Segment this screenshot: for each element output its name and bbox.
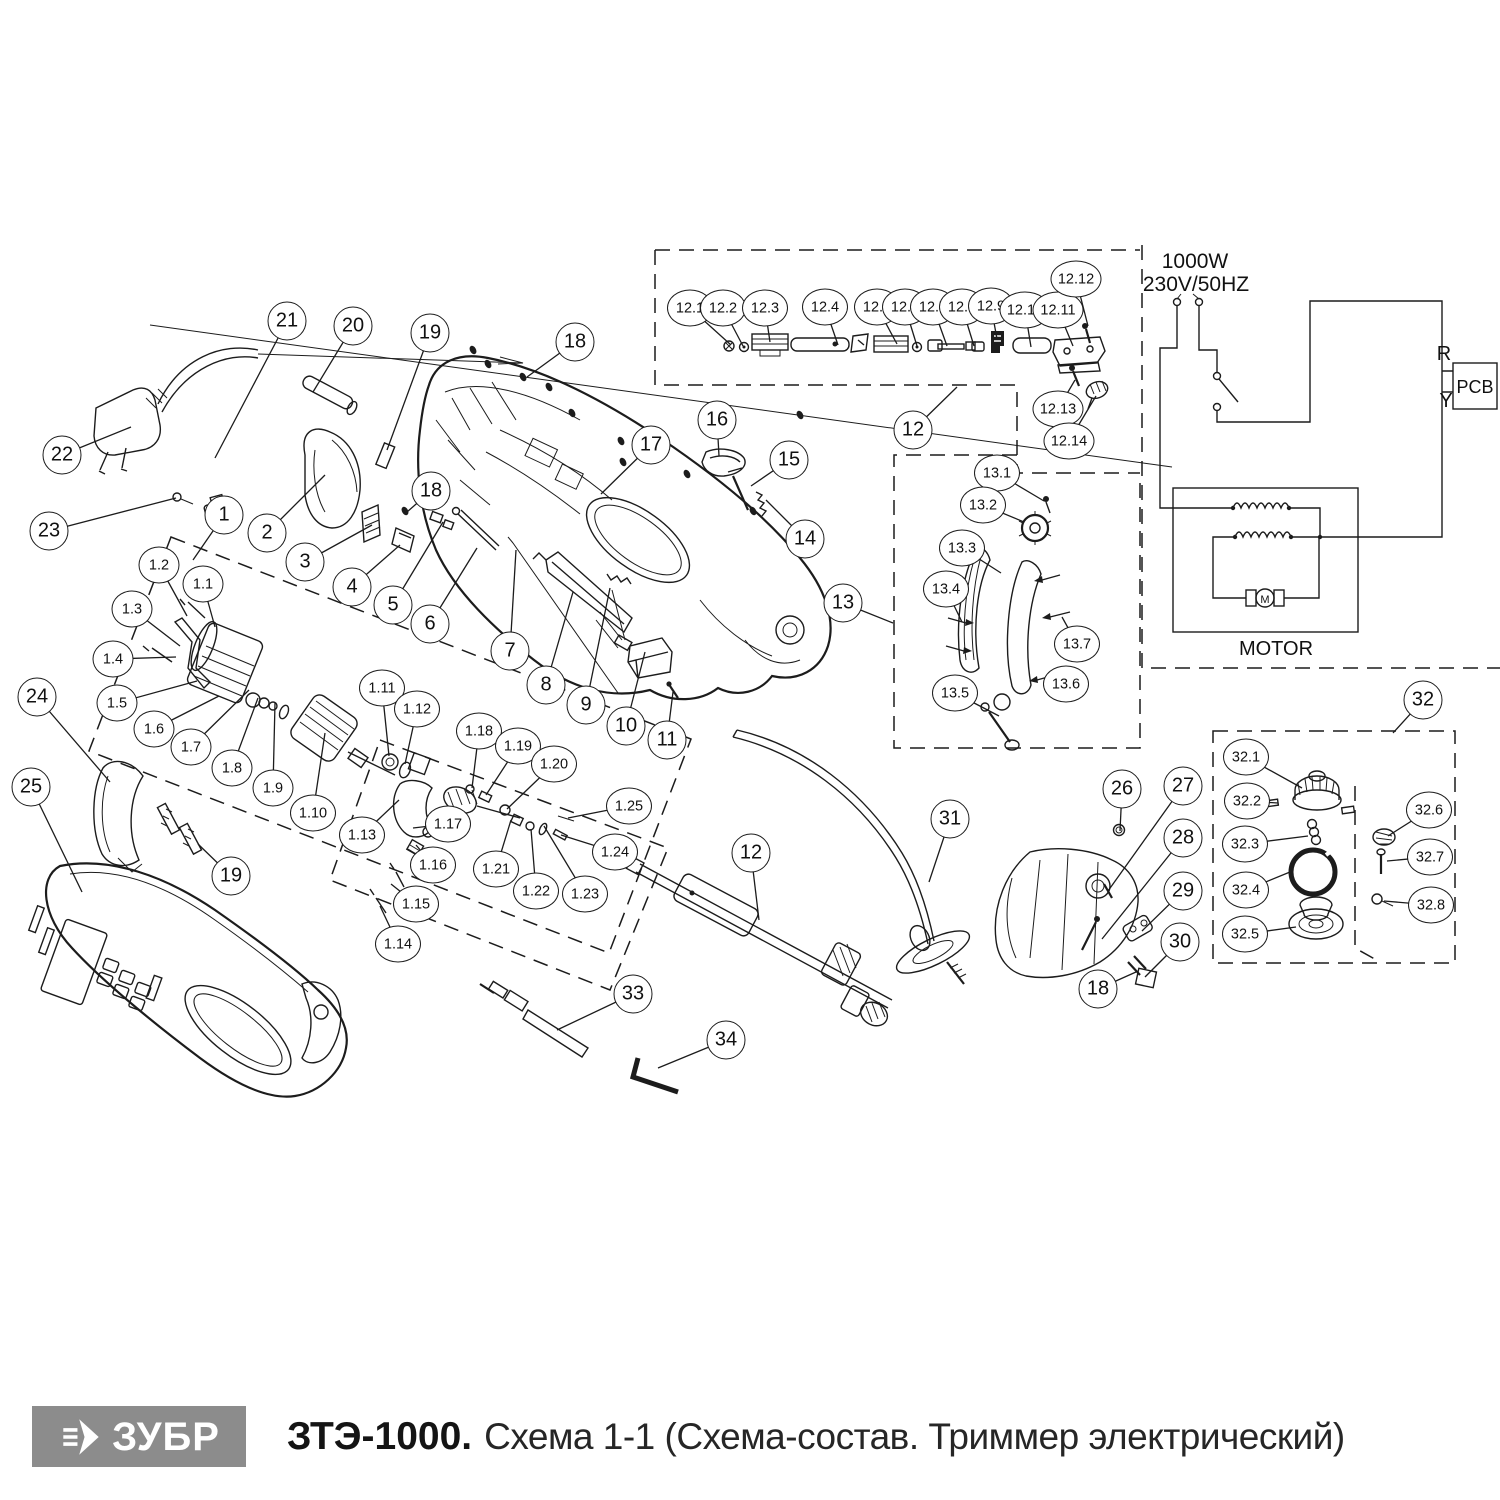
- callout-18-18: 18: [556, 323, 595, 362]
- callout-1.2-39: 1.2: [139, 547, 180, 584]
- callout-13.6-82: 13.6: [1043, 666, 1089, 703]
- callout-14-14: 14: [786, 520, 825, 559]
- callout-1.17-54: 1.17: [425, 806, 471, 843]
- callout-12-12: 12: [732, 834, 771, 873]
- callout-21-24: 21: [268, 302, 307, 341]
- callout-1.8-45: 1.8: [212, 750, 253, 787]
- callout-1.4-41: 1.4: [93, 641, 134, 678]
- callout-32.7-90: 32.7: [1407, 839, 1453, 876]
- callout-19-22: 19: [212, 857, 251, 896]
- callout-12.3-65: 12.3: [742, 290, 788, 327]
- callout-30-33: 30: [1161, 923, 1200, 962]
- callout-15-15: 15: [770, 441, 809, 480]
- callout-12.4-66: 12.4: [802, 289, 848, 326]
- callout-13.3-79: 13.3: [939, 530, 985, 567]
- drawing-title: ЗТЭ-1000. Схема 1-1 (Схема-состав. Тримм…: [287, 1406, 1345, 1467]
- callout-8-7: 8: [527, 666, 566, 705]
- callout-13.2-78: 13.2: [960, 487, 1006, 524]
- callout-23-26: 23: [30, 512, 69, 551]
- callout-18-20: 18: [1079, 970, 1118, 1009]
- callout-1.23-60: 1.23: [562, 876, 608, 913]
- callout-31-34: 31: [931, 800, 970, 839]
- callout-1.5-42: 1.5: [97, 685, 138, 722]
- callout-1.7-44: 1.7: [171, 729, 212, 766]
- callout-1.9-46: 1.9: [253, 770, 294, 807]
- callout-2-1: 2: [248, 514, 287, 553]
- callout-1: 1: [205, 496, 244, 535]
- callout-32.3-86: 32.3: [1222, 826, 1268, 863]
- callout-12.13-75: 12.13: [1033, 391, 1084, 428]
- callout-5-4: 5: [374, 586, 413, 625]
- diagram-canvas: 1000W 230V/50HZ R Y PCB M MOTOR: [0, 0, 1500, 1500]
- callout-1.14-51: 1.14: [375, 926, 421, 963]
- callout-28-31: 28: [1164, 819, 1203, 858]
- callout-1.20-57: 1.20: [531, 746, 577, 783]
- callout-24-27: 24: [18, 678, 57, 717]
- callout-13.4-80: 13.4: [923, 571, 969, 608]
- callout-10-9: 10: [607, 707, 646, 746]
- callout-1.25-62: 1.25: [606, 788, 652, 825]
- callout-12.14-76: 12.14: [1044, 423, 1095, 460]
- callout-balloons: 1234567891011121213141516171818181919202…: [0, 0, 1500, 1500]
- callout-9-8: 9: [567, 686, 606, 725]
- callout-4-3: 4: [333, 568, 372, 607]
- callout-1.12-49: 1.12: [394, 691, 440, 728]
- callout-1.24-61: 1.24: [592, 834, 638, 871]
- callout-33-36: 33: [614, 975, 653, 1014]
- callout-1.1-38: 1.1: [183, 566, 224, 603]
- footer: ЗУБР ЗТЭ-1000. Схема 1-1 (Схема-состав. …: [0, 1392, 1500, 1482]
- callout-20-23: 20: [334, 307, 373, 346]
- callout-1.13-50: 1.13: [339, 817, 385, 854]
- callout-1.21-58: 1.21: [473, 851, 519, 888]
- callout-26-29: 26: [1103, 770, 1142, 809]
- callout-1.22-59: 1.22: [513, 873, 559, 910]
- callout-32.2-85: 32.2: [1224, 783, 1270, 820]
- callout-1.10-47: 1.10: [290, 795, 336, 832]
- model-number: ЗТЭ-1000.: [287, 1415, 472, 1459]
- callout-1.6-43: 1.6: [134, 711, 175, 748]
- callout-32.8-91: 32.8: [1408, 887, 1454, 924]
- callout-13.5-81: 13.5: [932, 675, 978, 712]
- callout-18-19: 18: [412, 472, 451, 511]
- zubr-arrow-icon: [58, 1414, 104, 1460]
- brand-name: ЗУБР: [112, 1417, 220, 1457]
- callout-32.4-87: 32.4: [1223, 872, 1269, 909]
- callout-32-35: 32: [1404, 681, 1443, 720]
- callout-22-25: 22: [43, 436, 82, 475]
- callout-3-2: 3: [286, 543, 325, 582]
- callout-13-13: 13: [824, 584, 863, 623]
- callout-13.7-83: 13.7: [1054, 626, 1100, 663]
- callout-12-11: 12: [894, 411, 933, 450]
- callout-1.3-40: 1.3: [112, 591, 153, 628]
- callout-17-17: 17: [632, 426, 671, 465]
- callout-27-30: 27: [1164, 767, 1203, 806]
- callout-1.16-53: 1.16: [410, 847, 456, 884]
- callout-25-28: 25: [12, 768, 51, 807]
- callout-7-6: 7: [491, 632, 530, 671]
- callout-12.2-64: 12.2: [700, 290, 746, 327]
- callout-34-37: 34: [707, 1021, 746, 1060]
- callout-16-16: 16: [698, 401, 737, 440]
- callout-6-5: 6: [411, 605, 450, 644]
- callout-32.6-89: 32.6: [1406, 792, 1452, 829]
- callout-29-32: 29: [1164, 872, 1203, 911]
- callout-1.15-52: 1.15: [393, 886, 439, 923]
- callout-32.1-84: 32.1: [1223, 739, 1269, 776]
- callout-19-21: 19: [411, 314, 450, 353]
- callout-32.5-88: 32.5: [1222, 916, 1268, 953]
- brand-logo: ЗУБР: [32, 1406, 246, 1467]
- callout-11-10: 11: [648, 721, 687, 760]
- schema-subtitle: Схема 1-1 (Схема-состав. Триммер электри…: [484, 1416, 1345, 1458]
- callout-12.12-74: 12.12: [1051, 261, 1102, 298]
